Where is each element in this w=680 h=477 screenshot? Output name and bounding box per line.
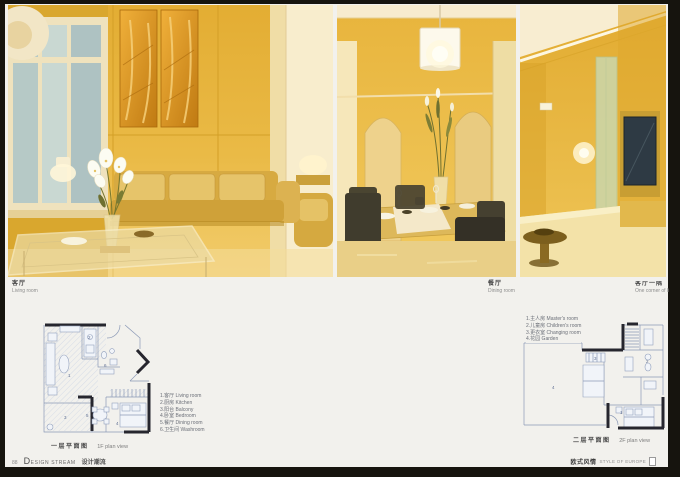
photo-dining-room — [337, 5, 516, 277]
caption-cn: 餐厅 — [488, 281, 515, 288]
photo-living-room — [8, 5, 333, 277]
photo-living-corner — [520, 5, 666, 277]
legend-item: 1.主人房 Master's room — [526, 316, 581, 323]
legend-item: 2.儿童房 Children's room — [526, 323, 581, 330]
room-number: 1 — [620, 410, 623, 415]
living-corner-illustration — [520, 5, 666, 277]
tv-screen — [620, 111, 660, 197]
sofa — [110, 171, 300, 226]
legend-item: 6.卫生间 Washroom — [160, 427, 205, 434]
plan-caption-en: 1F plan view — [97, 444, 128, 450]
plan-caption-cn: 一层平面图 — [51, 444, 89, 450]
page-number: 88 — [12, 460, 18, 466]
caption-cn: 客厅 — [12, 281, 38, 288]
section-title-en: STYLE OF EUROPE — [599, 459, 646, 464]
caption-en: Dining room — [488, 288, 515, 294]
plan-1f-caption: 一层平面图 1F plan view — [51, 441, 128, 450]
floor-plan-1f: 1 2 3 4 5 6 — [24, 307, 164, 440]
legend-item: 4.花园 Garden — [526, 336, 581, 343]
plan-2f-legend: 1.主人房 Master's room 2.儿童房 Children's roo… — [526, 316, 581, 343]
section-marker-icon — [649, 457, 656, 466]
wall-sign — [540, 103, 552, 110]
plan-caption-cn: 二层平面图 — [573, 438, 611, 444]
room-number: 4 — [552, 385, 555, 390]
caption-en: One corner of living room — [635, 288, 669, 294]
section-title-cn: 欧式风情 — [570, 457, 596, 466]
caption-cn: 客厅一隅 — [635, 281, 669, 288]
footer-right: 欧式风情 STYLE OF EUROPE — [570, 457, 656, 466]
plan-1f-legend: 1.客厅 Living room 2.厨房 Kitchen 3.阳台 Balco… — [160, 393, 205, 434]
legend-item: 1.客厅 Living room — [160, 393, 205, 400]
caption-living-room: 客厅 Living room — [12, 281, 38, 294]
room-number: 4 — [116, 421, 119, 426]
legend-item: 5.餐厅 Dining room — [160, 420, 205, 427]
living-room-illustration — [8, 5, 333, 277]
magazine-page: 客厅 Living room 餐厅 Dining room 客厅一隅 One c… — [5, 4, 668, 467]
dining-room-illustration — [337, 5, 516, 277]
legend-item: 4.卧室 Bedroom — [160, 413, 205, 420]
plan-2f-caption: 二层平面图 2F plan view — [573, 435, 650, 444]
caption-living-corner: 客厅一隅 One corner of living room — [635, 281, 669, 294]
caption-dining-room: 餐厅 Dining room — [488, 281, 515, 294]
plan-caption-en: 2F plan view — [619, 438, 650, 444]
legend-item: 2.厨房 Kitchen — [160, 400, 205, 407]
brand-name-cn: 设计潮流 — [82, 457, 106, 466]
brand-name: DESIGN STREAM — [24, 456, 76, 466]
caption-en: Living room — [12, 288, 38, 294]
footer-left: 88 DESIGN STREAM 设计潮流 — [12, 456, 106, 466]
